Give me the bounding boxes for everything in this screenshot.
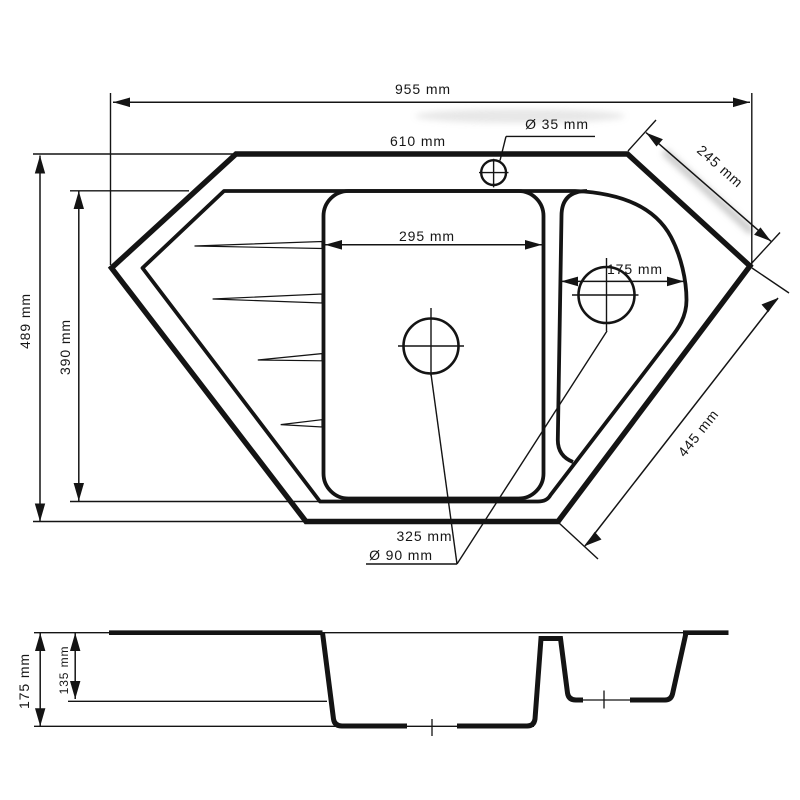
svg-text:325 mm: 325 mm: [397, 528, 453, 544]
svg-text:445 mm: 445 mm: [674, 406, 721, 460]
svg-text:295 mm: 295 mm: [399, 228, 455, 244]
svg-text:175 mm: 175 mm: [607, 261, 663, 277]
svg-text:489 mm: 489 mm: [17, 293, 33, 349]
svg-text:175 mm: 175 mm: [16, 653, 32, 709]
svg-text:Ø 35 mm: Ø 35 mm: [525, 116, 589, 132]
svg-text:610 mm: 610 mm: [390, 133, 446, 149]
svg-text:390 mm: 390 mm: [57, 319, 73, 375]
svg-text:955 mm: 955 mm: [395, 81, 451, 97]
svg-text:135 mm: 135 mm: [57, 646, 71, 695]
svg-text:Ø 90 mm: Ø 90 mm: [369, 547, 433, 563]
